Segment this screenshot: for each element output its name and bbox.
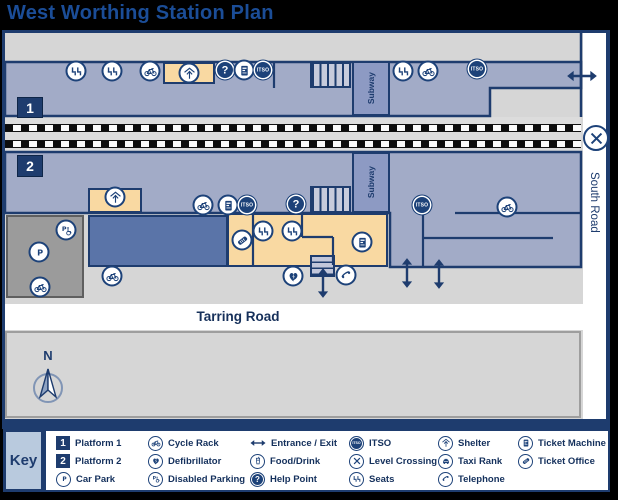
entrance-arrow-v-marker: [433, 259, 446, 289]
ticket-machine-marker: [218, 195, 239, 216]
key-column-4: ITSOITSOLevel CrossingSeats: [349, 434, 437, 488]
itso-icon: ITSO: [237, 195, 258, 216]
platform-2-icon: 2: [56, 454, 70, 468]
defibrillator-icon: [148, 454, 163, 469]
entrance-arrow-v-icon: [401, 258, 414, 288]
key-item-seats: Seats: [349, 470, 437, 488]
help-point-icon: ?: [215, 60, 236, 81]
key-item-label: Taxi Rank: [458, 456, 502, 467]
key-item-label: Platform 1: [75, 438, 121, 449]
ticket-office-marker: [232, 230, 253, 251]
key-item-telephone: Telephone: [438, 470, 505, 488]
ticket-machine-icon: [234, 60, 255, 81]
disabled-parking-icon: P: [148, 472, 163, 487]
key-item-label: Seats: [369, 474, 394, 485]
seats-marker: [282, 221, 303, 242]
svg-text:P: P: [37, 247, 43, 257]
level-crossing-marker: [583, 125, 609, 151]
seats-icon: [253, 221, 274, 242]
help-point-icon: ?: [286, 194, 307, 215]
ticket-office-icon: [518, 454, 533, 469]
ticket-machine-icon: [518, 436, 533, 451]
cycle-rack-marker: [140, 61, 161, 82]
key-item-label: Level Crossing: [369, 456, 437, 467]
car-park-icon: P: [29, 242, 50, 263]
itso-marker: ITSO: [237, 195, 258, 216]
svg-text:P: P: [62, 477, 67, 483]
seats-icon: [393, 61, 414, 82]
itso-marker: ITSO: [467, 59, 488, 80]
key-title: Key: [3, 429, 44, 492]
key-column-6: Ticket MachineTicket Office: [518, 434, 606, 470]
key-item-label: Telephone: [458, 474, 505, 485]
key-item-itso: ITSOITSO: [349, 434, 437, 452]
key-column-3: Entrance / ExitFood/Drink?Help Point: [250, 434, 337, 488]
key-item-label: Defibrillator: [168, 456, 221, 467]
entrance-arrow-v-icon: [433, 259, 446, 289]
entrance-arrow-v-marker: [317, 268, 330, 298]
key-item-label: Entrance / Exit: [271, 438, 337, 449]
key-item-label: Platform 2: [75, 456, 121, 467]
key-item-label: ITSO: [369, 438, 391, 449]
key-item-level-crossing: Level Crossing: [349, 452, 437, 470]
key-item-help-point: ?Help Point: [250, 470, 337, 488]
key-item-shelter: Shelter: [438, 434, 505, 452]
car-park-icon: P: [56, 472, 71, 487]
entrance-arrow-h-marker: [566, 70, 598, 83]
entrance-arrow-v-icon: [317, 268, 330, 298]
key-item-label: Food/Drink: [270, 456, 320, 467]
itso-icon: ITSO: [467, 59, 488, 80]
key-column-2: Cycle RackDefibrillatorPDisabled Parking: [148, 434, 245, 488]
ticket-machine-marker: [352, 232, 373, 253]
shelter-icon: [105, 187, 126, 208]
cycle-rack-marker: [418, 61, 439, 82]
telephone-icon: [336, 265, 357, 286]
cycle-rack-icon: [193, 195, 214, 216]
key-column-5: ShelterTaxi RankTelephone: [438, 434, 505, 488]
shelter-icon: [179, 63, 200, 84]
taxi-rank-icon: [438, 454, 453, 469]
itso-marker: ITSO: [412, 195, 433, 216]
shelter-marker: [105, 187, 126, 208]
key-item-defibrillator: Defibrillator: [148, 452, 245, 470]
key-item-label: Ticket Office: [538, 456, 595, 467]
cycle-rack-marker: [30, 277, 51, 298]
itso-icon: ITSO: [253, 60, 274, 81]
itso-marker: ITSO: [253, 60, 274, 81]
key-item-label: Car Park: [76, 474, 115, 485]
cycle-rack-icon: [30, 277, 51, 298]
cycle-rack-marker: [193, 195, 214, 216]
cycle-rack-marker: [497, 197, 518, 218]
telephone-marker: [336, 265, 357, 286]
help-point-marker: ?: [286, 194, 307, 215]
key-item-ticket-office: Ticket Office: [518, 452, 606, 470]
entrance-arrow-v-marker: [401, 258, 414, 288]
key-item-disabled-parking: PDisabled Parking: [148, 470, 245, 488]
food-drink-icon: [250, 454, 265, 469]
ticket-machine-icon: [352, 232, 373, 253]
defibrillator-marker: [283, 266, 304, 287]
map-markers-layer: ?ITSOITSOITSO?ITSOPP: [0, 0, 618, 500]
key-column-1: 1Platform 12Platform 2PCar Park: [56, 434, 121, 488]
key-item-ticket-machine: Ticket Machine: [518, 434, 606, 452]
ticket-machine-marker: [234, 60, 255, 81]
itso-icon: ITSO: [412, 195, 433, 216]
seats-marker: [393, 61, 414, 82]
entrance-icon: [250, 438, 266, 448]
key-item-label: Disabled Parking: [168, 474, 245, 485]
level-crossing-icon: [583, 125, 609, 151]
entrance-arrow-h-icon: [566, 70, 598, 83]
ticket-machine-icon: [218, 195, 239, 216]
disabled-parking-marker: P: [56, 220, 77, 241]
seats-marker: [66, 61, 87, 82]
seats-icon: [349, 472, 364, 487]
defibrillator-icon: [283, 266, 304, 287]
disabled-parking-icon: P: [56, 220, 77, 241]
key-item-label: Ticket Machine: [538, 438, 606, 449]
key-item-label: Shelter: [458, 438, 490, 449]
platform-1-icon: 1: [56, 436, 70, 450]
seats-marker: [253, 221, 274, 242]
car-park-marker: P: [29, 242, 50, 263]
cycle-rack-icon: [102, 266, 123, 287]
seats-marker: [102, 61, 123, 82]
telephone-icon: [438, 472, 453, 487]
key-item-taxi-rank: Taxi Rank: [438, 452, 505, 470]
cycle-rack-icon: [418, 61, 439, 82]
cycle-rack-marker: [102, 266, 123, 287]
help-point-icon: ?: [250, 472, 265, 487]
seats-icon: [66, 61, 87, 82]
key-item-platform-2: 2Platform 2: [56, 452, 121, 470]
seats-icon: [282, 221, 303, 242]
shelter-marker: [179, 63, 200, 84]
key-item-label: Cycle Rack: [168, 438, 219, 449]
key-item-entrance: Entrance / Exit: [250, 434, 337, 452]
cycle-rack-icon: [140, 61, 161, 82]
key-item-cycle-rack: Cycle Rack: [148, 434, 245, 452]
key-item-food-drink: Food/Drink: [250, 452, 337, 470]
itso-icon: ITSO: [349, 436, 364, 451]
seats-icon: [102, 61, 123, 82]
svg-text:P: P: [61, 225, 66, 233]
help-point-marker: ?: [215, 60, 236, 81]
level-crossing-icon: [349, 454, 364, 469]
key-item-platform-1: 1Platform 1: [56, 434, 121, 452]
ticket-office-icon: [232, 230, 253, 251]
key-item-car-park: PCar Park: [56, 470, 121, 488]
station-plan-page: West Worthing Station Plan Subway Subway: [0, 0, 618, 500]
cycle-rack-icon: [148, 436, 163, 451]
shelter-icon: [438, 436, 453, 451]
cycle-rack-icon: [497, 197, 518, 218]
key-item-label: Help Point: [270, 474, 317, 485]
